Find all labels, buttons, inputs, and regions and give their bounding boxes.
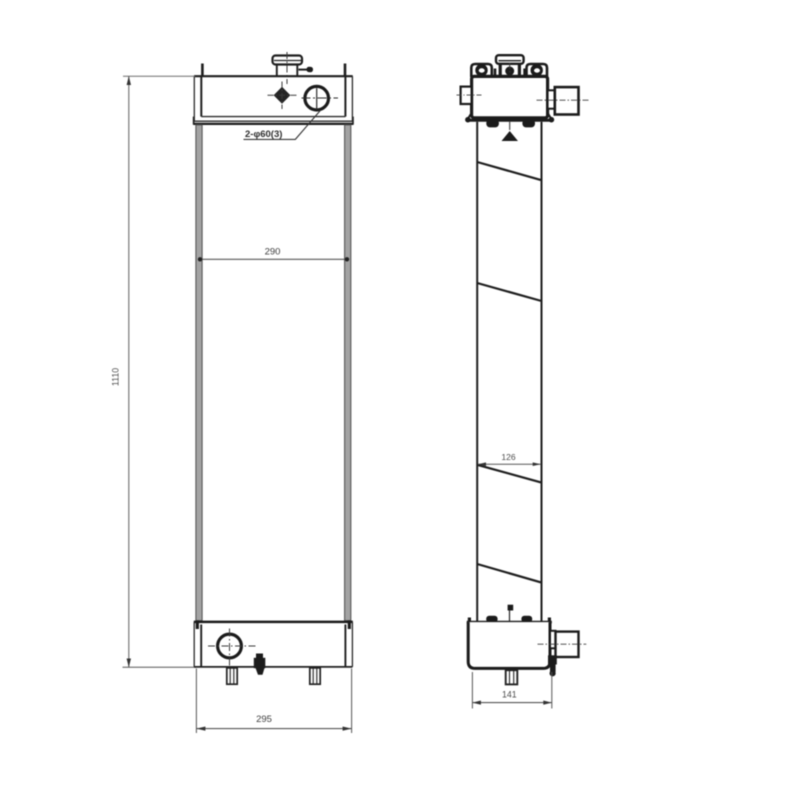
svg-text:1110: 1110: [111, 368, 121, 386]
svg-text:295: 295: [256, 714, 272, 725]
svg-text:2-φ60(3): 2-φ60(3): [245, 129, 282, 140]
svg-text:126: 126: [501, 452, 515, 462]
svg-text:290: 290: [265, 247, 281, 258]
svg-text:141: 141: [502, 690, 517, 700]
